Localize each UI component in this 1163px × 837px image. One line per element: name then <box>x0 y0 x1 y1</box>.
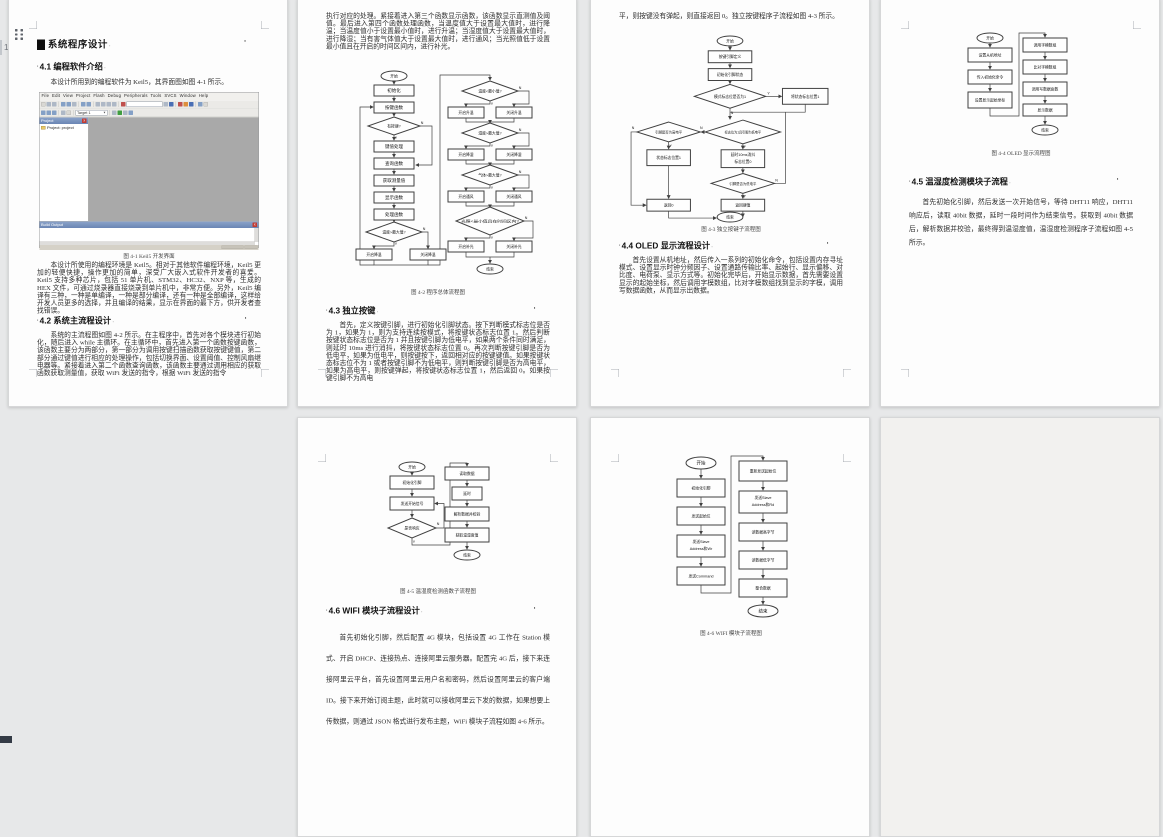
paragraph-end-mark: · <box>1117 175 1120 184</box>
svg-text:结束: 结束 <box>463 553 471 558</box>
svg-text:N: N <box>632 126 635 130</box>
fc-nodes: 开始 设置从机地址 传入初始化命令 设置显示起始坐标 调用字模数组 比对字模数组… <box>968 33 1067 135</box>
svg-text:获取测量值: 获取测量值 <box>383 177 406 184</box>
svg-text:光照<最小值且在时间区内?: 光照<最小值且在时间区内? <box>461 219 519 224</box>
flowchart-figure-4-5[interactable]: 开始 初始化引脚 发送开始信号 是否响应 读取数据 延时 解析数据并校验 获取温… <box>332 460 544 565</box>
svg-text:键值处理: 键值处理 <box>385 143 403 150</box>
screen-corner-artifact <box>0 736 12 743</box>
section-heading-4-2: ·4.2 系统主流程设计· · <box>37 314 269 326</box>
svg-text:结束: 结束 <box>486 267 494 272</box>
svg-text:开始: 开始 <box>726 38 734 43</box>
svg-text:N: N <box>775 178 778 182</box>
svg-text:Y: Y <box>395 242 398 246</box>
svg-text:处理函数: 处理函数 <box>385 211 403 218</box>
paragraph-drag-handle-icon[interactable] <box>15 29 24 40</box>
svg-text:查询函数: 查询函数 <box>385 160 403 167</box>
keil-status-bar <box>40 245 259 250</box>
svg-text:Y: Y <box>491 102 494 106</box>
page-7-blank[interactable] <box>880 417 1160 837</box>
svg-text:获取温湿度值: 获取温湿度值 <box>456 533 479 538</box>
paragraph-end-mark: · <box>534 604 537 613</box>
keil-build-output-panel: Build Output x <box>40 221 259 245</box>
left-margin-bar <box>0 40 2 55</box>
margin-crop-mark <box>550 454 558 462</box>
folder-icon <box>41 126 46 130</box>
page-5[interactable]: 开始 初始化引脚 发送开始信号 是否响应 读取数据 延时 解析数据并校验 获取温… <box>297 417 577 837</box>
margin-crop-mark <box>611 369 619 377</box>
svg-text:关闭通风: 关闭通风 <box>506 194 521 199</box>
svg-text:开启升温: 开启升温 <box>458 110 473 115</box>
svg-text:解析数据并校验: 解析数据并校验 <box>454 512 481 517</box>
keil-editor-area <box>89 118 259 222</box>
svg-text:模式标志位是否为1: 模式标志位是否为1 <box>714 94 746 99</box>
svg-text:N: N <box>437 522 440 526</box>
keil-target-select: Target 1 ▼ <box>76 110 108 116</box>
margin-crop-mark <box>29 369 37 377</box>
svg-text:Y: Y <box>669 144 672 148</box>
svg-text:Y: Y <box>395 136 398 140</box>
svg-text:标志位为1且引脚为低电平: 标志位为1且引脚为低电平 <box>725 129 761 134</box>
page-1[interactable]: 4 系统程序设计· · ·4.1 编程软件介绍· 本设计所用到的编程软件为 Ke… <box>8 0 288 407</box>
figure-caption: 图 4-2 程序总体流程图 <box>326 288 550 296</box>
flowchart-figure-4-6[interactable]: 开始 初始化引脚 发送起始位 发送Slave Address和Wr 发送Comm… <box>625 451 837 623</box>
fc-nodes: 开始 初始化引脚 发送起始位 发送Slave Address和Wr 发送Comm… <box>677 457 787 617</box>
svg-text:湿度>最大值?: 湿度>最大值? <box>478 131 501 136</box>
svg-text:温度<最小值?: 温度<最小值? <box>478 89 501 94</box>
svg-text:发送Command: 发送Command <box>688 574 713 579</box>
svg-text:比对字模数组: 比对字模数组 <box>1034 65 1057 70</box>
body-paragraph: 执行对应的处理。紧接着进入第三个函数显示函数，该函数显示直测值及阈值。最后进入第… <box>326 12 550 50</box>
section-heading-4-1: ·4.1 编程软件介绍· <box>37 60 269 72</box>
svg-text:调用写数据函数: 调用写数据函数 <box>1032 87 1059 92</box>
svg-text:N: N <box>423 227 426 231</box>
chapter-heading-text: 系统程序设计 <box>45 40 108 51</box>
svg-text:返回0: 返回0 <box>664 203 674 208</box>
scrollbar <box>40 242 256 246</box>
svg-text:开启降温: 开启降温 <box>366 252 381 257</box>
svg-text:结束: 结束 <box>759 608 768 615</box>
svg-text:结束: 结束 <box>1041 128 1049 133</box>
page-3[interactable]: 平，则按键没有弹起，则直接返回 0。独立按键程序子流程如图 4-3 所示。 <box>590 0 870 407</box>
svg-text:整合数据: 整合数据 <box>755 586 770 591</box>
keil-menu-bar: File Edit View Project Flash Debug Perip… <box>40 93 259 101</box>
svg-text:N: N <box>519 128 522 132</box>
svg-text:显示函数: 显示函数 <box>385 194 403 201</box>
paragraph-end-mark: · <box>244 37 247 46</box>
close-icon: x <box>82 119 87 124</box>
svg-text:延时: 延时 <box>463 491 471 496</box>
svg-text:返回键值: 返回键值 <box>735 203 750 208</box>
intro-paragraph: 本设计所用到的编程软件为 Keil5，其界面图如图 4-1 所示。 <box>37 78 261 86</box>
svg-text:N: N <box>731 111 734 115</box>
keil-project-panel: Project x Project: project <box>40 118 89 222</box>
svg-text:引脚是否为高电平: 引脚是否为高电平 <box>655 129 683 134</box>
svg-text:读数据高字节: 读数据高字节 <box>752 530 775 535</box>
svg-text:重新发送起始位: 重新发送起始位 <box>750 469 777 474</box>
figure-caption: 图 4-3 独立按键子流程图 <box>619 225 843 233</box>
svg-text:有按键?: 有按键? <box>387 124 401 129</box>
margin-crop-mark <box>843 454 851 462</box>
flowchart-figure-4-2[interactable]: 开始 初始化 按键函数 有按键? 键值处理 查询函数 获取测量值 显示函数 处理… <box>332 65 544 281</box>
svg-text:设置从机地址: 设置从机地址 <box>979 53 1002 58</box>
svg-text:开始: 开始 <box>390 74 398 79</box>
svg-text:标志位置0: 标志位置0 <box>734 159 751 164</box>
page-6[interactable]: 开始 初始化引脚 发送起始位 发送Slave Address和Wr 发送Comm… <box>590 417 870 837</box>
section-heading-4-3: ·4.3 独立按键· · <box>326 304 558 316</box>
svg-text:引脚是否为低电平: 引脚是否为低电平 <box>729 181 757 186</box>
svg-text:关闭补光: 关闭补光 <box>506 244 521 249</box>
body-paragraph: 首先设置从机地址，然后传入一系列的初始化命令，包括设置内存寻址模式、设置显示时钟… <box>619 256 843 294</box>
margin-crop-mark <box>901 369 909 377</box>
section-heading-4-5: ·4.5 温湿度检测模块子流程· · <box>909 175 1141 187</box>
svg-text:N: N <box>525 216 528 220</box>
svg-text:开始: 开始 <box>697 460 706 467</box>
svg-text:是否响应: 是否响应 <box>404 526 419 531</box>
chapter-heading: 4 系统程序设计· · <box>37 37 269 51</box>
flowchart-figure-4-3[interactable]: 开始 按键引脚定义 初始化引脚状态 模式标志位是否为1 将状态标志位置1 引脚是… <box>625 33 837 223</box>
page-2[interactable]: 执行对应的处理。紧接着进入第三个函数显示函数，该函数显示直测值及阈值。最后进入第… <box>297 0 577 407</box>
svg-text:初始化引脚: 初始化引脚 <box>403 480 422 485</box>
svg-text:状态标志位置1: 状态标志位置1 <box>656 155 681 160</box>
svg-text:N: N <box>421 121 424 125</box>
svg-text:开启通风: 开启通风 <box>458 194 473 199</box>
svg-text:初始化: 初始化 <box>387 87 401 94</box>
svg-text:温度>最大值?: 温度>最大值? <box>382 230 405 235</box>
figure-caption: 图 4-6 WIFI 模块子流程图 <box>619 629 843 637</box>
svg-text:发送Slave: 发送Slave <box>754 495 771 500</box>
keil-toolbar-build: Target 1 ▼ <box>40 109 259 118</box>
fc-nodes: 开始 初始化 按键函数 有按键? 键值处理 查询函数 获取测量值 显示函数 处理… <box>356 71 532 274</box>
body-paragraph: 系统的主流程图如图 4-2 所示。在主程序中，首先对各个模块进行初始化，随后进入… <box>37 331 261 377</box>
margin-crop-mark <box>318 454 326 462</box>
keil-search-box <box>127 102 163 108</box>
chevron-down-icon: ▼ <box>103 111 106 114</box>
svg-text:读数据低字节: 读数据低字节 <box>752 558 775 563</box>
keil-ide-screenshot[interactable]: File Edit View Project Flash Debug Perip… <box>39 92 259 248</box>
scrollbar <box>255 228 259 242</box>
svg-text:N: N <box>519 86 522 90</box>
svg-text:关闭降温: 关闭降温 <box>420 252 435 257</box>
svg-text:Y: Y <box>413 540 416 544</box>
svg-text:Y: Y <box>744 194 747 198</box>
svg-text:气体>最大值?: 气体>最大值? <box>478 173 501 178</box>
svg-text:开启补光: 开启补光 <box>458 244 473 249</box>
section-heading-4-4: ·4.4 OLED 显示流程设计· · <box>619 239 851 251</box>
figure-caption: 图 4-1 Keil5 开发界面 <box>37 252 261 260</box>
svg-text:Address和Wr: Address和Wr <box>690 546 713 551</box>
margin-crop-mark <box>1133 21 1141 29</box>
body-paragraph: 首先初始化引脚，然后配置 4G 模块，包括设置 4G 工作在 Station 模… <box>326 627 550 732</box>
margin-crop-mark <box>261 369 269 377</box>
svg-text:结束: 结束 <box>726 215 734 220</box>
svg-text:发送起始位: 发送起始位 <box>692 514 711 519</box>
margin-crop-mark <box>29 21 37 29</box>
svg-text:将状态标志位置1: 将状态标志位置1 <box>791 94 819 99</box>
svg-text:初始化引脚状态: 初始化引脚状态 <box>717 72 744 77</box>
figure-caption: 图 4-4 OLED 显示流程图 <box>909 149 1133 157</box>
margin-crop-mark <box>261 21 269 29</box>
svg-text:发送Slave: 发送Slave <box>692 539 709 544</box>
svg-text:开始: 开始 <box>408 465 416 470</box>
paragraph-end-mark: · <box>245 314 248 323</box>
margin-crop-mark <box>611 454 619 462</box>
figure-caption: 图 4-5 温湿度检测函数子流程图 <box>326 587 550 595</box>
page-4[interactable]: 开始 设置从机地址 传入初始化命令 设置显示起始坐标 调用字模数组 比对字模数组… <box>880 0 1160 407</box>
section-heading-4-6: ·4.6 WIFI 模块子流程设计· · <box>326 604 558 616</box>
body-paragraph: 首先初始化引脚，然后发送一次开始信号，等待 DHT11 响应，DHT11 响应后… <box>909 195 1133 249</box>
svg-text:开启降湿: 开启降湿 <box>458 152 473 157</box>
svg-text:Y: Y <box>744 145 747 149</box>
svg-text:关闭升温: 关闭升温 <box>506 110 521 115</box>
svg-text:初始化引脚: 初始化引脚 <box>692 486 711 491</box>
svg-text:Y: Y <box>491 236 494 240</box>
keil-project-tree-item: Project: project <box>40 124 89 132</box>
svg-text:Y: Y <box>491 144 494 148</box>
paragraph-end-mark: · <box>534 304 537 313</box>
margin-crop-mark <box>901 21 909 29</box>
svg-text:N: N <box>700 126 703 130</box>
svg-text:发送开始信号: 发送开始信号 <box>401 501 424 506</box>
svg-text:显示数据: 显示数据 <box>1037 108 1052 113</box>
svg-text:Y: Y <box>767 91 770 95</box>
document-canvas: 1 4 系统程序设计· · ·4.1 编程软件介绍· 本设计所用到的编程软件为 … <box>0 0 1163 743</box>
keil-toolbar-top <box>40 100 259 109</box>
svg-text:设置显示起始坐标: 设置显示起始坐标 <box>975 98 1006 103</box>
svg-text:调用字模数组: 调用字模数组 <box>1034 43 1057 48</box>
close-icon: x <box>253 223 258 228</box>
body-paragraph: 本设计所使用的编程环境是 Keil5。相对于其他软件编程环境，Keil5 更加的… <box>37 261 261 314</box>
svg-text:读取数据: 读取数据 <box>459 471 474 476</box>
body-paragraph: 平，则按键没有弹起，则直接返回 0。独立按键程序子流程如图 4-3 所示。 <box>619 12 843 20</box>
svg-text:关闭降湿: 关闭降湿 <box>506 152 521 157</box>
svg-text:按键引脚定义: 按键引脚定义 <box>719 54 742 59</box>
margin-crop-mark <box>550 369 558 377</box>
svg-text:开始: 开始 <box>986 36 994 41</box>
svg-text:Address和Rd: Address和Rd <box>752 502 775 507</box>
selected-chapter-number: 4 <box>37 40 45 51</box>
svg-text:传入初始化命令: 传入初始化命令 <box>977 75 1004 80</box>
flowchart-figure-4-4[interactable]: 开始 设置从机地址 传入初始化命令 设置显示起始坐标 调用字模数组 比对字模数组… <box>915 30 1127 144</box>
margin-crop-mark <box>843 369 851 377</box>
body-paragraph: 首先，定义按键引脚，进行初始化引脚状态。按下判断模式标志位是否为 1，如果为 1… <box>326 321 550 382</box>
svg-text:按键函数: 按键函数 <box>385 104 403 111</box>
paragraph-end-mark: · <box>827 239 830 248</box>
svg-text:Y: Y <box>491 186 494 190</box>
margin-crop-mark <box>318 369 326 377</box>
svg-text:延时10ms消抖: 延时10ms消抖 <box>731 152 755 157</box>
svg-text:N: N <box>519 170 522 174</box>
